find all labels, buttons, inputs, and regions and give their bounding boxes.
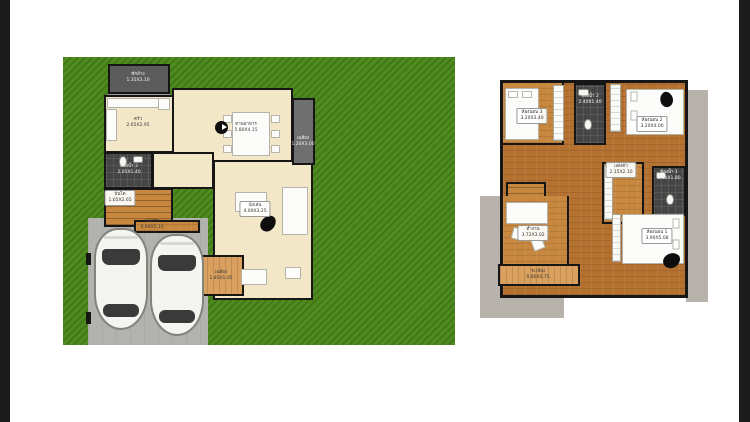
chair [223, 145, 232, 153]
room-label-study: ทำงาน3.72X3.02 [517, 225, 548, 241]
floor-plan-image: ซักล้าง1.35X3.10 ครัว2.65X2.95 ทานอาหาร5… [0, 0, 750, 422]
room-label-stairs: บันได1.05X2.65 [104, 190, 135, 206]
sofa [282, 187, 308, 235]
toilet-icon [666, 194, 674, 205]
lower-roof-terrace [686, 90, 708, 302]
room-label-bath1: ห้องน้ำ 12.10X1.80 [657, 170, 680, 182]
side-table [285, 267, 301, 279]
left-edge-bar [0, 0, 10, 422]
room-label-living: นั่งเล่น4.00X3.25 [239, 201, 270, 217]
gate-post [86, 312, 91, 324]
toilet-icon [584, 119, 592, 130]
room-label-front-porch: เฉลียง1.85X1.05 [209, 270, 232, 282]
cabinet [241, 269, 267, 285]
sink-icon [133, 156, 143, 163]
room-label-dining: ทานอาหาร5.80X4.15 [234, 122, 257, 134]
kitchen-counter [107, 98, 163, 108]
chair [271, 115, 280, 123]
room-label-bed2: ห้องนอน 23.20X4.00 [636, 116, 667, 132]
wardrobe [610, 84, 621, 132]
chair [271, 130, 280, 138]
car-icon [150, 234, 204, 336]
side-porch-room [292, 98, 315, 165]
refrigerator [158, 98, 170, 110]
room-label-bath2: ห้องน้ำ 22.40X1.40 [578, 94, 601, 106]
room-label-bed3: ห้องนอน 33.20X3.40 [516, 108, 547, 124]
hallway [152, 152, 214, 189]
first-floor-plan: ซักล้าง1.35X3.10 ครัว2.65X2.95 ทานอาหาร5… [63, 57, 455, 345]
room-label-carpark: จอดรถ4.90X5.10 [140, 219, 163, 231]
room-label-bed1: ห้องนอน 13.90X5.08 [641, 228, 672, 244]
car-icon [94, 228, 148, 330]
second-floor-plan: ห้องนอน 33.20X3.40 ห้องน้ำ 22.40X1.40 ห้… [480, 72, 708, 320]
room-label-laundry: ซักล้าง1.35X3.10 [126, 72, 149, 84]
north-indicator-icon [215, 121, 228, 134]
room-label-bath3: ห้องน้ำ 32.05X1.40 [117, 164, 140, 176]
right-edge-bar [739, 0, 750, 422]
room-label-balcony: ระเบียง0.80X3.75 [526, 269, 549, 281]
room-label-dressing: แต่งตัว2.15X2.10 [605, 162, 636, 178]
desk [506, 202, 548, 224]
gate-post [86, 253, 91, 265]
chair [271, 145, 280, 153]
kitchen-counter [106, 109, 117, 141]
room-label-side-porch: เฉลียง1.20X3.00 [291, 136, 314, 148]
room-label-kitchen: ครัว2.65X2.95 [126, 117, 149, 129]
wardrobe [612, 214, 621, 262]
wardrobe [553, 85, 564, 141]
